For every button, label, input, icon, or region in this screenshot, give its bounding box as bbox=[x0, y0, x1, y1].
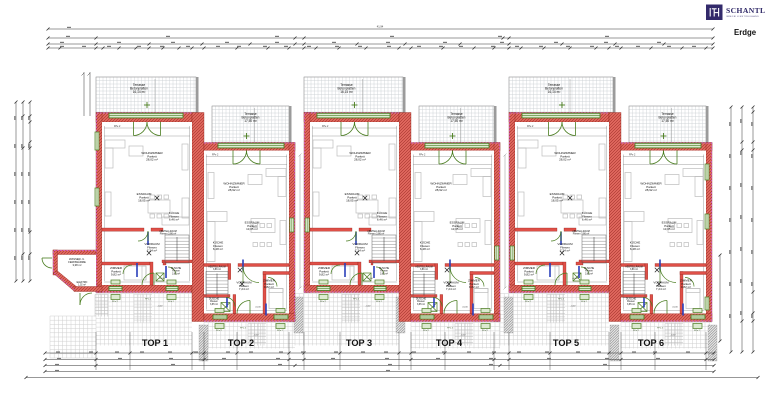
svg-text:FFe 2: FFe 2 bbox=[320, 301, 326, 303]
svg-text:FFe 2: FFe 2 bbox=[482, 330, 488, 332]
svg-text:FFe 4: FFe 4 bbox=[240, 328, 246, 330]
svg-text:FFe 2: FFe 2 bbox=[277, 330, 283, 332]
svg-text:FPe 2: FPe 2 bbox=[212, 154, 219, 157]
svg-text:FFe 2: FFe 2 bbox=[581, 301, 587, 303]
svg-text:KÜCHEFliesen6,48 m²: KÜCHEFliesen6,48 m² bbox=[630, 241, 641, 252]
svg-text:-0,02: -0,02 bbox=[461, 335, 467, 337]
svg-text:-0,02: -0,02 bbox=[158, 306, 164, 308]
svg-text:-0,02: -0,02 bbox=[571, 306, 577, 308]
svg-text:KÜCHEFliesen6,46 m²: KÜCHEFliesen6,46 m² bbox=[377, 211, 388, 222]
svg-text:±0,00: ±0,00 bbox=[572, 278, 578, 280]
svg-text:KÜCHEFliesen6,46 m²: KÜCHEFliesen6,46 m² bbox=[582, 211, 593, 222]
svg-text:±0,00: ±0,00 bbox=[367, 278, 373, 280]
svg-text:IMMOBILIENTREUHAND: IMMOBILIENTREUHAND bbox=[726, 15, 759, 18]
svg-text:FPe 2: FPe 2 bbox=[527, 125, 534, 128]
svg-text:FFe 2: FFe 2 bbox=[633, 330, 639, 332]
svg-text:-0,02: -0,02 bbox=[671, 335, 677, 337]
svg-text:FPe 2: FPe 2 bbox=[419, 154, 426, 157]
svg-text:FFe 2: FFe 2 bbox=[112, 301, 118, 303]
svg-text:ABSTELLRAUMFliesen 3,86 m²: ABSTELLRAUMFliesen 3,86 m² bbox=[159, 230, 177, 236]
svg-text:±0,00: ±0,00 bbox=[672, 307, 678, 309]
svg-text:SCHANTL: SCHANTL bbox=[726, 6, 766, 15]
svg-text:FFe 4: FFe 4 bbox=[447, 328, 453, 330]
svg-text:TOP 2: TOP 2 bbox=[228, 338, 254, 348]
svg-text:±0,00: ±0,00 bbox=[462, 307, 468, 309]
svg-text:FFe 4: FFe 4 bbox=[558, 299, 564, 301]
svg-text:FFe 4: FFe 4 bbox=[657, 328, 663, 330]
svg-text:TOP 5: TOP 5 bbox=[553, 338, 579, 348]
svg-text:FFe 2: FFe 2 bbox=[525, 301, 531, 303]
svg-text:ABSTELLRAUMFliesen 3,86 m²: ABSTELLRAUMFliesen 3,86 m² bbox=[572, 230, 590, 236]
svg-text:FPe 2: FPe 2 bbox=[322, 125, 329, 128]
svg-text:FPe 2: FPe 2 bbox=[114, 125, 121, 128]
svg-text:±0,00: ±0,00 bbox=[255, 307, 261, 309]
svg-text:FFe 2: FFe 2 bbox=[216, 330, 222, 332]
svg-text:ABSTELLRAUMFliesen 3,86 m²: ABSTELLRAUMFliesen 3,86 m² bbox=[367, 230, 385, 236]
svg-text:FFe 2: FFe 2 bbox=[423, 330, 429, 332]
svg-text:KÜCHEFliesen6,48 m²: KÜCHEFliesen6,48 m² bbox=[213, 241, 224, 252]
svg-text:FFe 4: FFe 4 bbox=[353, 299, 359, 301]
svg-text:TOP 1: TOP 1 bbox=[142, 338, 168, 348]
svg-text:-0,02: -0,02 bbox=[366, 306, 372, 308]
svg-text:±0,00: ±0,00 bbox=[159, 278, 165, 280]
svg-text:FFe 2: FFe 2 bbox=[694, 330, 700, 332]
svg-text:FPe 2: FPe 2 bbox=[629, 154, 636, 157]
svg-text:KÜCHEFliesen6,46 m²: KÜCHEFliesen6,46 m² bbox=[169, 211, 180, 222]
svg-text:-0,02: -0,02 bbox=[254, 335, 260, 337]
svg-text:KÜCHEFliesen6,48 m²: KÜCHEFliesen6,48 m² bbox=[420, 241, 431, 252]
svg-text:TOP 6: TOP 6 bbox=[638, 338, 664, 348]
svg-text:TOP 3: TOP 3 bbox=[346, 338, 372, 348]
svg-text:Erdge: Erdge bbox=[734, 28, 757, 37]
svg-text:TOP 4: TOP 4 bbox=[436, 338, 463, 348]
svg-text:FFe 4: FFe 4 bbox=[145, 299, 151, 301]
svg-text:FFe 2: FFe 2 bbox=[168, 301, 174, 303]
svg-text:FFe 2: FFe 2 bbox=[376, 301, 382, 303]
svg-text:41,94: 41,94 bbox=[377, 25, 384, 29]
